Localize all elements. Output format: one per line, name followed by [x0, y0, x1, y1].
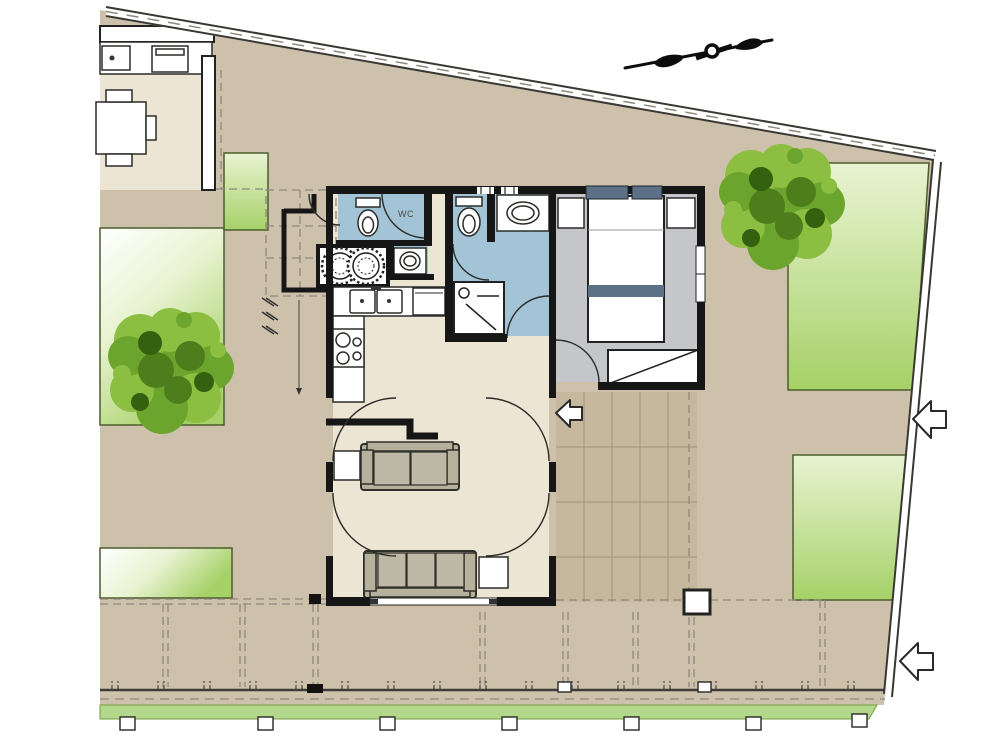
burner [336, 333, 350, 347]
neighbor-building [96, 26, 215, 190]
burner [337, 352, 349, 364]
sofa-two-seat [361, 442, 459, 490]
lawn-mid-small [224, 153, 268, 230]
bedroom-window-right [696, 246, 705, 302]
sink-drain [387, 299, 391, 303]
nightstand-right [667, 198, 695, 228]
fence-post [380, 717, 395, 730]
terrace [556, 392, 697, 602]
fence-post [624, 717, 639, 730]
neighbor-dining-table [96, 102, 146, 154]
pergola-post-white [558, 682, 571, 692]
side-table-right [479, 557, 508, 588]
wc-label: WC [398, 209, 414, 219]
fence-post [120, 717, 135, 730]
neighbor-sink [102, 46, 130, 70]
neighbor-right-wall [202, 56, 215, 190]
neighbor-appliance-detail [156, 49, 184, 55]
shower [454, 282, 504, 334]
terrace-post [684, 590, 710, 614]
bed-blanket-stripe [588, 285, 664, 297]
lawn-left-small [100, 548, 232, 598]
north-window [501, 187, 518, 194]
burner [353, 352, 361, 360]
washbasin-bowl [512, 206, 534, 220]
neighbor-sink-drain [110, 56, 115, 61]
kitchen-appliance [413, 288, 445, 315]
neighbor-chair [106, 90, 132, 102]
terrace-tiles [556, 392, 697, 602]
site-plan-canvas: WC [0, 0, 1000, 750]
bedroom-window-top [586, 186, 628, 199]
bath-toilet-tank [456, 197, 482, 206]
sink-faucet [371, 286, 381, 290]
neighbor-chair [146, 116, 156, 140]
nightstand-left [558, 198, 584, 228]
bed [588, 196, 664, 342]
bedroom-window-top [632, 186, 662, 199]
sofa-three-seat [364, 551, 476, 598]
wc-toilet-bowl [363, 217, 374, 233]
pergola-post-black [309, 594, 321, 604]
fence-post [746, 717, 761, 730]
bath-toilet-bowl [463, 215, 475, 233]
pergola-post-white [698, 682, 711, 692]
burner [353, 338, 361, 346]
site-plan: WC [0, 0, 1000, 750]
side-table-left [334, 451, 360, 480]
entrance-arrow-right-bottom [900, 643, 933, 680]
fence-post [258, 717, 273, 730]
lawn-right-bottom [793, 455, 906, 600]
south-window [370, 598, 497, 605]
north-window [477, 187, 494, 194]
bidet-bowl [404, 256, 416, 266]
fence-post [502, 717, 517, 730]
north-arrow [625, 38, 772, 68]
gate-marker [307, 684, 323, 693]
wc-toilet-tank [356, 198, 380, 207]
shower-tray [454, 282, 504, 334]
fence-post [852, 714, 867, 727]
sink-drain [360, 299, 364, 303]
fence-ticks [100, 681, 886, 690]
neighbor-chair [106, 154, 132, 166]
